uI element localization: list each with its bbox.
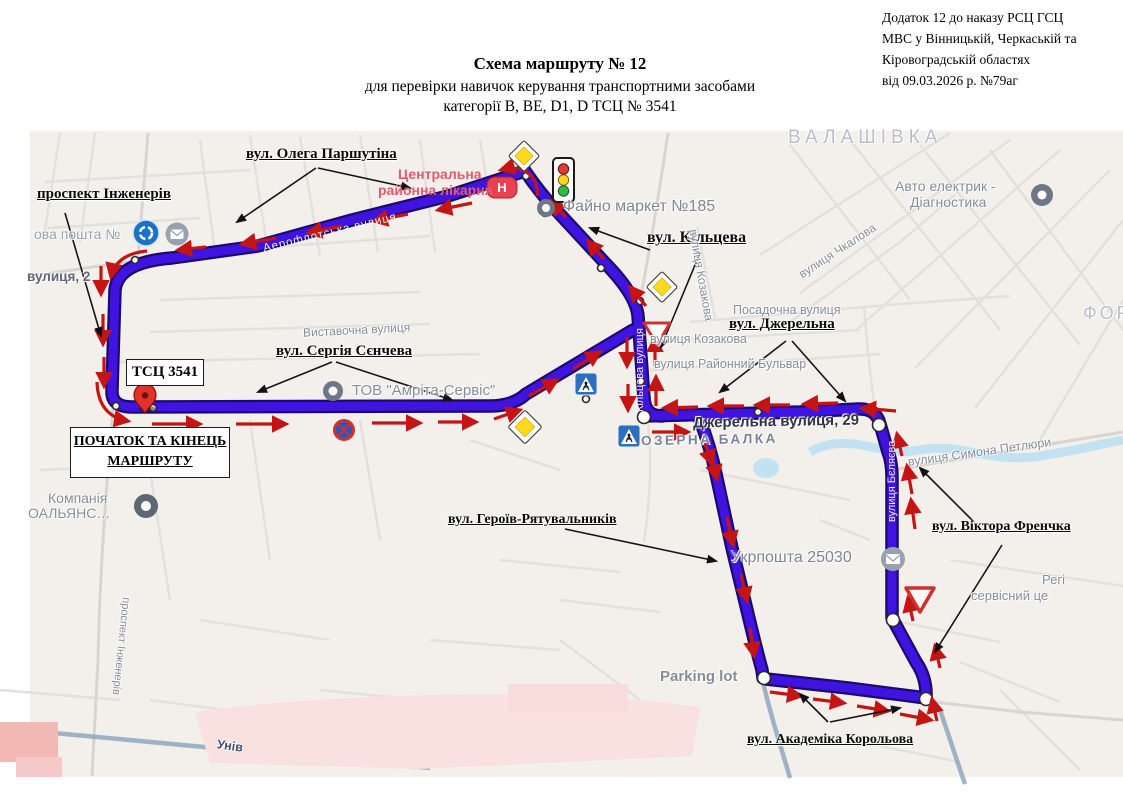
poi-avto-elektryk-line2: Діагностика (910, 194, 986, 210)
annex-line: Кіровоградській областях (882, 50, 1120, 71)
tsc-label-box: ТСЦ 3541 (126, 359, 204, 386)
start-finish-line2: МАРШРУТУ (71, 452, 229, 472)
no-stopping-sign (335, 421, 354, 440)
callout-oleha-parshutina: вул. Олега Паршутіна (246, 146, 397, 163)
district-ozerna-balka: ОЗЕРНА БАЛКА (641, 431, 778, 448)
callout-serhiia-sencheva: вул. Сергія Сєнчева (276, 343, 412, 360)
pedestrian-crossing-sign (575, 373, 640, 447)
poi-ukrposhta: Укрпошта 25030 (731, 549, 852, 567)
annex-note: Додаток 12 до наказу РСЦ ГСЦ МВС у Вінни… (882, 8, 1120, 92)
poi-tov-amrita-servis: ТОВ "Амріта-Сервіс" (352, 382, 495, 399)
district-fort: ФОР (1083, 303, 1123, 324)
poi-nova-poshta: ова пошта № (34, 226, 120, 242)
post-icon (166, 223, 189, 246)
callout-viktora-frenchka: вул. Віктора Френчка (932, 519, 1071, 535)
poi-parking-lot: Parking lot (660, 668, 738, 685)
callout-prospekt-inzheneriv: проспект Інженерів (37, 186, 171, 203)
page-subtitle-1: для перевірки навичок керування транспор… (250, 78, 870, 96)
street-kozakova: вулиця Козакова (650, 332, 747, 346)
street-dzherelna-29: Джерельна вулиця, 29 (693, 412, 859, 432)
poi-hospital-line1: Центральна (398, 166, 482, 182)
annex-line: Додаток 12 до наказу РСЦ ГСЦ (882, 8, 1120, 29)
callout-akademika-korolova: вул. Академіка Корольова (747, 732, 913, 748)
start-finish-line1: ПОЧАТОК ТА КІНЕЦЬ (71, 432, 229, 452)
poi-rehionalnyi-line1: Регі (1042, 572, 1065, 587)
page-subtitle-2: категорії В, ВЕ, D1, D ТСЦ № 3541 (250, 98, 870, 116)
callout-dzherelna: вул. Джерельна (729, 316, 835, 333)
street-kiltseva-on-route: Кільцева вулиця (634, 328, 646, 412)
traffic-light-icon (553, 158, 574, 202)
poi-kompaniia-line2: ОАЛЬЯНС… (28, 505, 110, 521)
annex-line: МВС у Вінницькій, Черкаській та (882, 29, 1120, 50)
poi-avto-elektryk-line1: Авто електрик - (895, 178, 996, 194)
street-raionnyi-bulvar: вулиця Районний Бульвар (654, 357, 806, 371)
page-title: Схема маршруту № 12 (250, 54, 870, 74)
annex-line: від 09.03.2026 р. №79аг (882, 71, 1120, 92)
street-posadochna: Посадочна вулиця (733, 303, 841, 317)
ukrposhta-icon (881, 547, 905, 571)
poi-rehionalnyi-line2: сервісний це (971, 588, 1048, 603)
map-graphics (0, 0, 1123, 794)
district-valashivka: ВАЛАШІВКА (788, 127, 942, 149)
callout-heroiv-riatuvalnykiv: вул. Героїв-Рятувальників (448, 512, 617, 528)
hospital-h-letter: Н (487, 180, 517, 195)
poi-hospital-line2: районна лікарня (378, 182, 493, 198)
route-scheme-page: Схема маршруту № 12 для перевірки навичо… (0, 0, 1123, 794)
roundabout-sign (133, 220, 159, 246)
street-bieliaieva-on-route: вулиця Бєляєва (886, 441, 898, 522)
pond (753, 458, 779, 478)
poi-kompaniia-line1: Компанія (48, 490, 107, 506)
street-vulytsia-2: вулиця, 2 (27, 269, 90, 284)
poi-fayno-market: Файно маркет №185 (563, 198, 715, 216)
